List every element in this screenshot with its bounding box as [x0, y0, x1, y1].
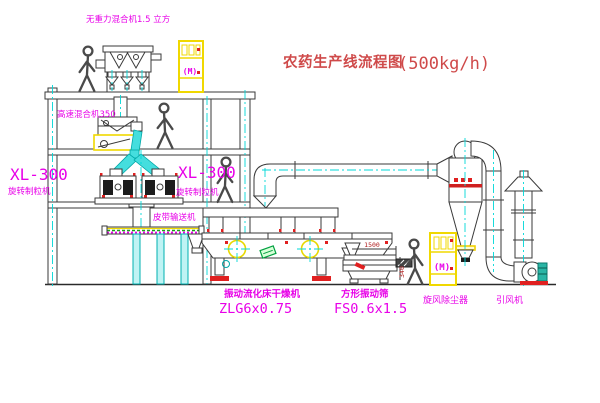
- control-cabinet-lower: (M): [430, 233, 456, 285]
- label-induced-fan: 引风机: [496, 294, 523, 306]
- dryer-exhaust-duct: [254, 161, 437, 208]
- label-sieve-model: FS0.6x1.5: [334, 301, 407, 317]
- left-column: [48, 88, 57, 284]
- label-sieve-name: 方形振动筛: [341, 288, 389, 300]
- label-granulator-left-model: XL-300: [10, 165, 68, 184]
- worker-top-floor: [80, 47, 95, 91]
- title-capacity: (500kg/h): [398, 54, 490, 74]
- label-cyclone-collector: 旋风除尘器: [423, 294, 468, 306]
- diagram-svg: (M): [0, 0, 600, 403]
- induced-draft-fan: [514, 262, 548, 285]
- label-dryer-model: ZLG6x0.75: [219, 301, 292, 317]
- label-granulator-left-name: 旋转制粒机: [8, 186, 51, 197]
- label-gravity-mixer: 无重力混合机1.5 立方: [86, 14, 170, 25]
- sieve-length-dimension: 1500: [364, 241, 380, 249]
- high-speed-mixer: [94, 95, 142, 152]
- drawing-title: 农药生产线流程图 (500kg/h): [282, 53, 490, 74]
- top-floor-beam: [45, 92, 255, 99]
- control-cabinet-upper: (M): [179, 41, 203, 92]
- title-text: 农药生产线流程图: [282, 53, 403, 71]
- label-granulator-center-model: XL-300: [178, 163, 236, 182]
- cabinet-motor-glyph: (M): [183, 67, 197, 76]
- sieve-height-dimension: 340: [398, 266, 406, 278]
- square-vibrating-sieve: 1500 340: [343, 241, 412, 283]
- label-granulator-center-name: 旋转制粒机: [176, 187, 219, 198]
- mid-floor-beam: [48, 149, 250, 155]
- label-dryer-name: 振动流化床干燥机: [224, 288, 301, 300]
- label-belt-conveyor: 皮带输送机: [153, 212, 196, 223]
- worker-ground: [408, 240, 423, 284]
- label-high-speed-mixer: 高速混合机350: [57, 109, 116, 120]
- belt-conveyor: [102, 226, 204, 284]
- gravity-free-mixer: [96, 46, 161, 92]
- worker-second-floor: [158, 104, 173, 148]
- cabinet-motor-glyph: (M): [434, 263, 450, 273]
- cad-flow-diagram: (M): [0, 0, 600, 403]
